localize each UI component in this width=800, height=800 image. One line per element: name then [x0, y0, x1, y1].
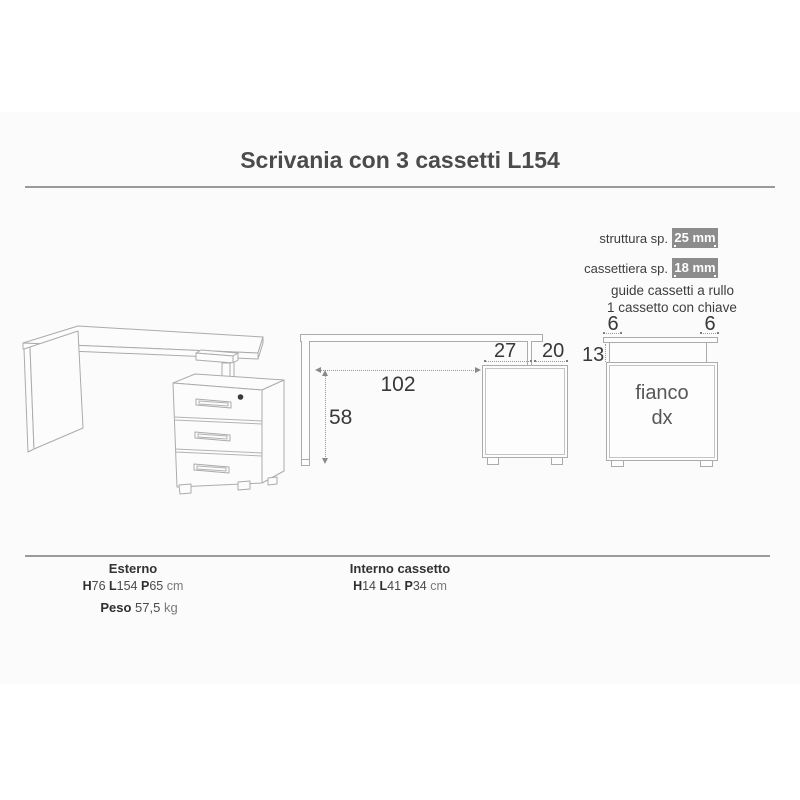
front-view-foot-right [551, 457, 563, 465]
page-title: Scrivania con 3 cassetti L154 [0, 147, 800, 174]
dim-tick [620, 332, 622, 334]
fianco-text: fianco [606, 381, 718, 406]
pedestal-foot-back [268, 477, 277, 485]
dim-102-arrow-right [475, 367, 481, 373]
dim-tick [700, 332, 702, 334]
peso-line: Peso 57,5 kg [60, 600, 218, 615]
side-view-foot-left [611, 460, 624, 467]
struttura-label: struttura sp. [599, 231, 668, 246]
dim-6-left-line [604, 333, 621, 334]
dim-102: 102 [368, 373, 428, 397]
side-view-support [609, 342, 707, 363]
dim-20: 20 [542, 340, 564, 363]
front-view-pedestal-inner-line [485, 368, 565, 455]
dim-tick [534, 360, 536, 362]
side-view-foot-right [700, 460, 713, 467]
dim-tick [566, 360, 568, 362]
esterno-dimensions: H76 L154 P65 cm [55, 579, 211, 593]
dim-13-line [605, 344, 606, 362]
specs-divider [25, 555, 770, 557]
dim-tick [484, 360, 486, 362]
dim-58-arrow-bottom [322, 458, 328, 464]
dim-27: 27 [494, 340, 516, 363]
dx-text: dx [606, 406, 718, 431]
dim-58: 58 [329, 406, 352, 430]
dim-20-line [535, 361, 567, 362]
dim-13: 13 [582, 344, 604, 367]
front-view-leg-foot-line [301, 459, 310, 460]
dim-tick [603, 332, 605, 334]
interno-dimensions: H14 L41 P34 cm [327, 579, 473, 593]
esterno-block: Esterno H76 L154 P65 cm [55, 561, 211, 593]
dim-27-line [485, 361, 531, 362]
interno-block: Interno cassetto H14 L41 P34 cm [327, 561, 473, 593]
esterno-title: Esterno [55, 561, 211, 576]
dim-tick [530, 360, 532, 362]
struttura-badge: 25 mm [672, 228, 718, 248]
dim-102-line [318, 370, 478, 371]
thickness-row-struttura: struttura sp. 25 mm [478, 228, 718, 248]
pedestal-right-face [262, 380, 284, 483]
front-view-pedestal [482, 365, 568, 458]
thickness-row-cassettiera: cassettiera sp. 18 mm [478, 258, 718, 278]
left-panel-side-face [30, 331, 83, 449]
interno-title: Interno cassetto [327, 561, 473, 576]
dim-102-arrow-left [315, 367, 321, 373]
cassettiera-badge: 18 mm [672, 258, 718, 278]
dim-58-line [325, 373, 326, 461]
side-view-label: fianco dx [606, 381, 718, 431]
pedestal-foot-right [238, 481, 250, 490]
front-view-foot-left [487, 457, 499, 465]
pedestal-foot-left [179, 484, 191, 494]
title-divider [25, 186, 775, 188]
dim-6-right-line [701, 333, 718, 334]
dim-tick [717, 332, 719, 334]
feature-guide-cassetti: guide cassetti a rullo [611, 283, 734, 298]
desk-3d-view [0, 310, 300, 510]
lock-icon [238, 394, 244, 400]
dim-58-arrow-top [322, 370, 328, 376]
front-view-left-leg [301, 341, 310, 466]
cassettiera-label: cassettiera sp. [584, 261, 668, 276]
